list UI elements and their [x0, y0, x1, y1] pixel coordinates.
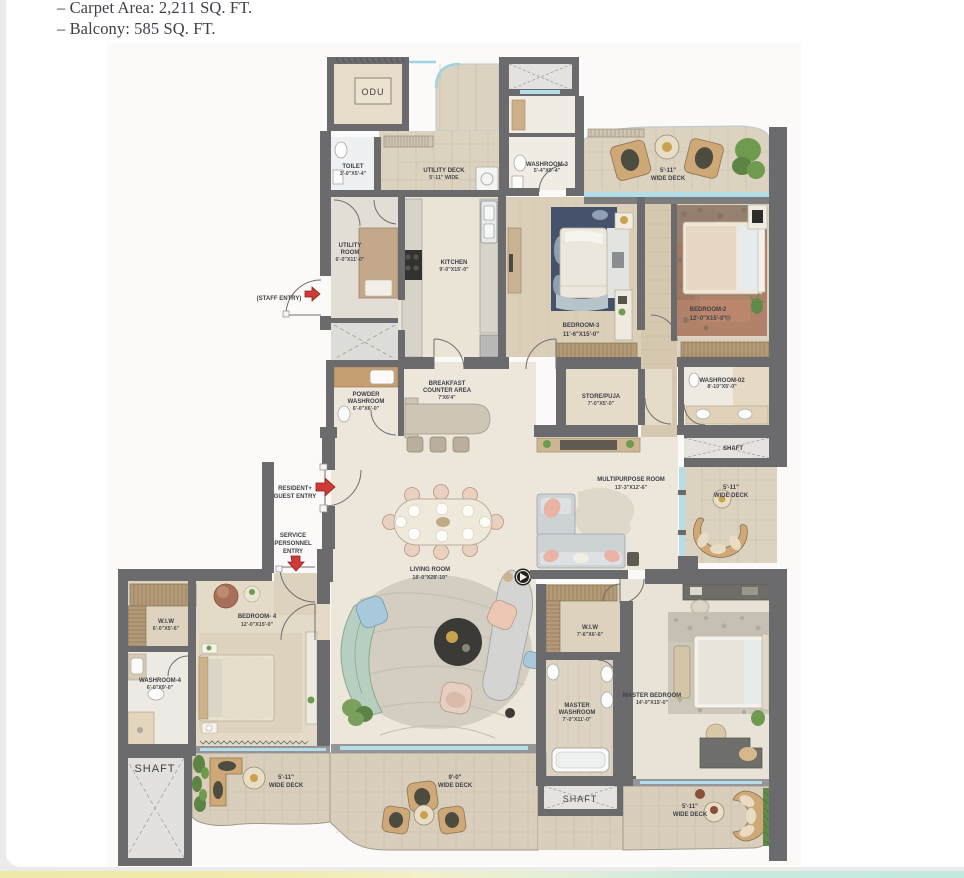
- svg-text:7'-6"X6'-6": 7'-6"X6'-6": [577, 632, 604, 638]
- svg-text:SHAFT: SHAFT: [723, 446, 743, 452]
- svg-text:7'-0"X5'-0": 7'-0"X5'-0": [588, 401, 615, 407]
- svg-text:COUNTER AREA: COUNTER AREA: [423, 388, 472, 394]
- svg-text:WASHROOM-4: WASHROOM-4: [139, 678, 182, 684]
- svg-text:12'-0"X15'-0": 12'-0"X15'-0": [241, 622, 274, 628]
- svg-text:5'-11": 5'-11": [278, 775, 294, 781]
- svg-text:6'-0"X5'-6": 6'-0"X5'-6": [153, 626, 180, 632]
- svg-text:SHAFT: SHAFT: [563, 794, 598, 804]
- svg-text:UTILITY DECK: UTILITY DECK: [423, 168, 465, 174]
- svg-text:BEDROOM-2: BEDROOM-2: [690, 307, 727, 313]
- svg-text:WIDE DECK: WIDE DECK: [714, 493, 749, 499]
- svg-text:ODU: ODU: [362, 87, 385, 97]
- svg-text:MULTIPURPOSE ROOM: MULTIPURPOSE ROOM: [597, 477, 665, 483]
- svg-text:WIDE DECK: WIDE DECK: [269, 783, 304, 789]
- svg-text:WASHROOM: WASHROOM: [559, 710, 596, 716]
- svg-text:5'-4"X8'-4": 5'-4"X8'-4": [534, 168, 561, 174]
- svg-text:WIDE DECK: WIDE DECK: [651, 176, 686, 182]
- svg-text:BEDROOM-3: BEDROOM-3: [563, 323, 600, 329]
- svg-text:5'-11": 5'-11": [660, 168, 676, 174]
- svg-text:UTILITY: UTILITY: [339, 243, 362, 249]
- svg-text:ENTRY: ENTRY: [283, 549, 303, 555]
- svg-text:RESIDENT+: RESIDENT+: [278, 486, 312, 492]
- svg-text:WIDE DECK: WIDE DECK: [438, 783, 473, 789]
- svg-text:STORE/PUJA: STORE/PUJA: [582, 394, 621, 400]
- svg-text:SHAFT: SHAFT: [134, 763, 175, 775]
- svg-text:WIDE DECK: WIDE DECK: [673, 812, 708, 818]
- svg-text:BREAKFAST: BREAKFAST: [429, 381, 466, 387]
- svg-text:MASTER: MASTER: [564, 703, 590, 709]
- svg-text:TOILET: TOILET: [342, 164, 364, 170]
- svg-text:SERVICE: SERVICE: [280, 533, 306, 539]
- svg-text:POWDER: POWDER: [353, 392, 381, 398]
- svg-text:5'-11": 5'-11": [682, 804, 698, 810]
- svg-text:(STAFF ENTRY): (STAFF ENTRY): [257, 296, 302, 302]
- svg-text:6'-0"X11'-0": 6'-0"X11'-0": [335, 257, 365, 263]
- svg-text:PERSONNEL: PERSONNEL: [274, 541, 312, 547]
- svg-text:BEDROOM- 4: BEDROOM- 4: [238, 614, 277, 620]
- svg-text:5'-11": 5'-11": [723, 485, 739, 491]
- svg-text:LIVING ROOM: LIVING ROOM: [410, 567, 450, 573]
- svg-text:18'-0"X28'-10": 18'-0"X28'-10": [412, 575, 448, 581]
- svg-text:3'-0"X5'-4": 3'-0"X5'-4": [340, 171, 367, 177]
- svg-text:7'-0"X11'-0": 7'-0"X11'-0": [562, 717, 592, 723]
- svg-text:W.I.W: W.I.W: [582, 625, 598, 631]
- svg-text:8'-10"X5'-0": 8'-10"X5'-0": [707, 384, 737, 390]
- svg-text:W.I.W: W.I.W: [158, 619, 174, 625]
- svg-text:5'-11" WIDE: 5'-11" WIDE: [429, 175, 459, 181]
- svg-text:6'-0"X9'-0": 6'-0"X9'-0": [147, 685, 174, 691]
- svg-text:9'-0": 9'-0": [449, 775, 462, 781]
- svg-text:9'-0"X15'-0": 9'-0"X15'-0": [439, 267, 469, 273]
- svg-text:WASHROOM: WASHROOM: [348, 399, 385, 405]
- svg-text:6'-0"X6'-0": 6'-0"X6'-0": [353, 406, 380, 412]
- svg-text:14'-0"X15'-0": 14'-0"X15'-0": [636, 700, 669, 706]
- svg-text:GUEST ENTRY: GUEST ENTRY: [274, 494, 316, 500]
- svg-text:ROOM: ROOM: [341, 250, 360, 256]
- svg-text:MASTER BEDROOM: MASTER BEDROOM: [623, 693, 681, 699]
- svg-text:11'-6"X15'-0": 11'-6"X15'-0": [563, 332, 599, 338]
- svg-text:13'-3"X12'-6": 13'-3"X12'-6": [615, 485, 648, 491]
- svg-text:KITCHEN: KITCHEN: [441, 260, 468, 266]
- svg-text:7'X6'4": 7'X6'4": [438, 395, 456, 401]
- svg-text:12'-0"X15'-0": 12'-0"X15'-0": [690, 316, 727, 322]
